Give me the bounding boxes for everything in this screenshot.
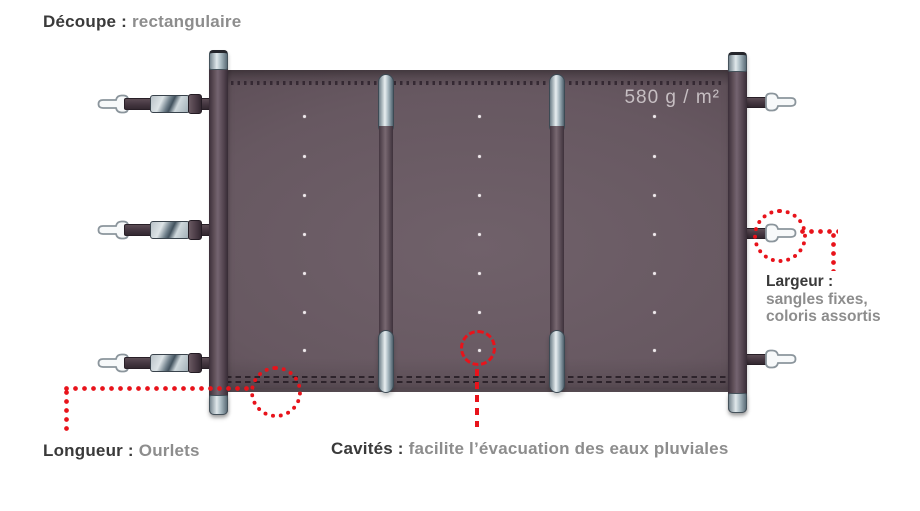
strap-buckle-icon [150, 221, 190, 239]
cavites-label-value: facilite l’évacuation des eaux pluviales [409, 439, 729, 458]
cavity-dot [478, 311, 481, 314]
batten-cap-bottom [549, 330, 565, 393]
cavity-dot [653, 155, 656, 158]
roller-tube-left [209, 50, 228, 415]
largeur-label-key: Largeur : [766, 273, 881, 291]
roller-tube-right [728, 52, 747, 413]
callout-circle-longueur [250, 366, 302, 418]
tube-end-cap-bottom [728, 393, 747, 413]
batten-cap-bottom [378, 330, 394, 393]
callout-line-cavites-vertical [475, 369, 479, 427]
callout-circle-cavites [460, 330, 496, 366]
largeur-label-line1: sangles fixes, [766, 291, 881, 309]
tube-end-cap-top [728, 52, 747, 72]
cavity-dot [478, 155, 481, 158]
cavity-dot [303, 311, 306, 314]
callout-line-longueur-horizontal [64, 386, 254, 391]
cavity-dot [478, 272, 481, 275]
batten-bar-right [549, 74, 565, 393]
cavity-dot [653, 311, 656, 314]
fixing-strap-left-bottom [98, 351, 218, 375]
fixing-strap-right-bottom [744, 347, 798, 371]
strap-hook-icon [764, 91, 798, 113]
strap-keeper [188, 353, 202, 373]
tube-end-cap-bottom [209, 395, 228, 415]
cavity-dot [303, 155, 306, 158]
strap-keeper [188, 220, 202, 240]
longueur-label-key: Longueur : [43, 441, 134, 460]
stitch-line-top [231, 81, 725, 85]
cavity-dot [303, 349, 306, 352]
longueur-label-value: Ourlets [139, 441, 200, 460]
strap-buckle-icon [150, 354, 190, 372]
tube-end-cap-top [209, 50, 228, 70]
cavity-dot [653, 233, 656, 236]
fixing-strap-right-top [744, 90, 798, 114]
strap-keeper [188, 94, 202, 114]
cavity-dot [478, 194, 481, 197]
cavity-dot [303, 233, 306, 236]
pool-cover-diagram: Découpe :rectangulaire [0, 0, 920, 511]
batten-cap-top [549, 74, 565, 134]
cavity-dot [653, 272, 656, 275]
cavity-dot [478, 115, 481, 118]
largeur-label-line2: coloris assortis [766, 308, 881, 326]
cavites-label: Cavités :facilite l’évacuation des eaux … [331, 439, 728, 459]
cavity-dot [478, 233, 481, 236]
title-label: Découpe : [43, 12, 127, 31]
batten-shaft [379, 126, 393, 344]
callout-line-largeur-vertical [831, 233, 836, 271]
callout-line-longueur-vertical [64, 390, 69, 434]
cavity-dot [303, 115, 306, 118]
cavity-dot [653, 194, 656, 197]
cavites-label-key: Cavités : [331, 439, 404, 458]
batten-bar-left [378, 74, 394, 393]
cavity-dot [653, 349, 656, 352]
fabric-weight-label: 580 g / m² [624, 87, 720, 109]
longueur-label: Longueur :Ourlets [43, 441, 200, 461]
cavity-dot [653, 115, 656, 118]
batten-shaft [550, 126, 564, 344]
fixing-strap-left-middle [98, 218, 218, 242]
cavity-dot [303, 194, 306, 197]
largeur-label: Largeur : sangles fixes, coloris assorti… [766, 273, 881, 326]
batten-cap-top [378, 74, 394, 134]
page-title: Découpe :rectangulaire [43, 12, 241, 32]
strap-hook-icon [764, 348, 798, 370]
callout-circle-largeur [753, 209, 807, 263]
title-value: rectangulaire [132, 12, 241, 31]
cavity-dot [303, 272, 306, 275]
strap-buckle-icon [150, 95, 190, 113]
fixing-strap-left-top [98, 92, 218, 116]
